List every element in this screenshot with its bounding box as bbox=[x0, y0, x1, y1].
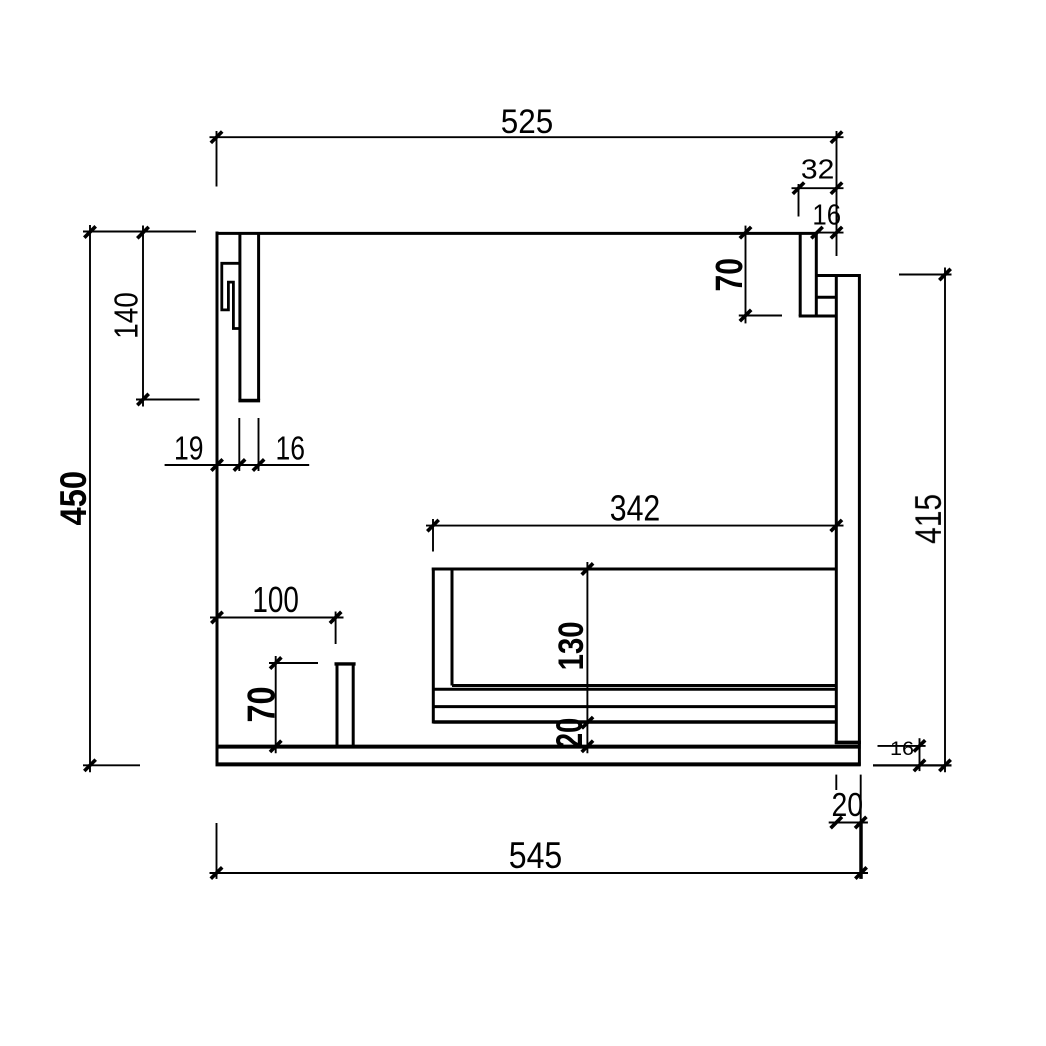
svg-text:130: 130 bbox=[551, 621, 591, 670]
svg-text:415: 415 bbox=[908, 494, 949, 544]
svg-text:16: 16 bbox=[890, 739, 914, 760]
svg-text:70: 70 bbox=[240, 686, 283, 722]
svg-text:20: 20 bbox=[832, 786, 864, 823]
svg-text:140: 140 bbox=[108, 292, 145, 339]
svg-text:545: 545 bbox=[509, 835, 563, 876]
svg-text:342: 342 bbox=[610, 488, 661, 529]
svg-text:32: 32 bbox=[801, 154, 835, 185]
svg-text:70: 70 bbox=[709, 258, 751, 291]
svg-text:100: 100 bbox=[252, 579, 299, 620]
svg-text:16: 16 bbox=[812, 200, 841, 232]
svg-text:20: 20 bbox=[549, 718, 590, 749]
svg-text:525: 525 bbox=[501, 103, 554, 141]
svg-text:19: 19 bbox=[174, 429, 204, 466]
svg-text:16: 16 bbox=[276, 429, 306, 466]
svg-text:450: 450 bbox=[53, 471, 94, 526]
